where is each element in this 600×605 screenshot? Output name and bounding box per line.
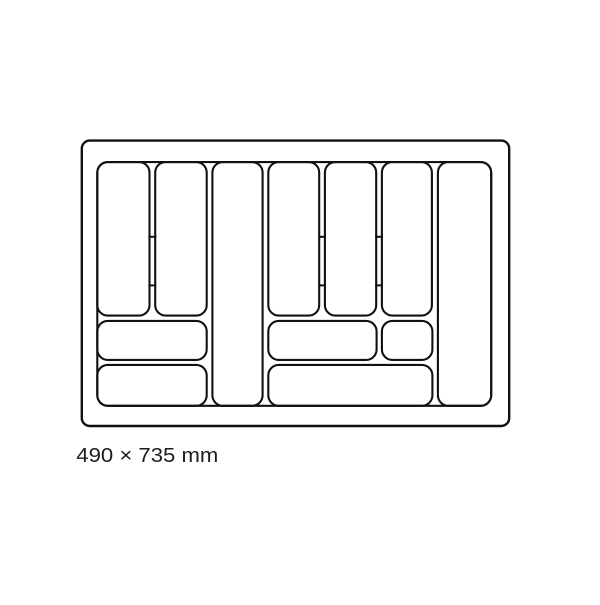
svg-text:490 × 735 mm: 490 × 735 mm xyxy=(76,445,218,467)
